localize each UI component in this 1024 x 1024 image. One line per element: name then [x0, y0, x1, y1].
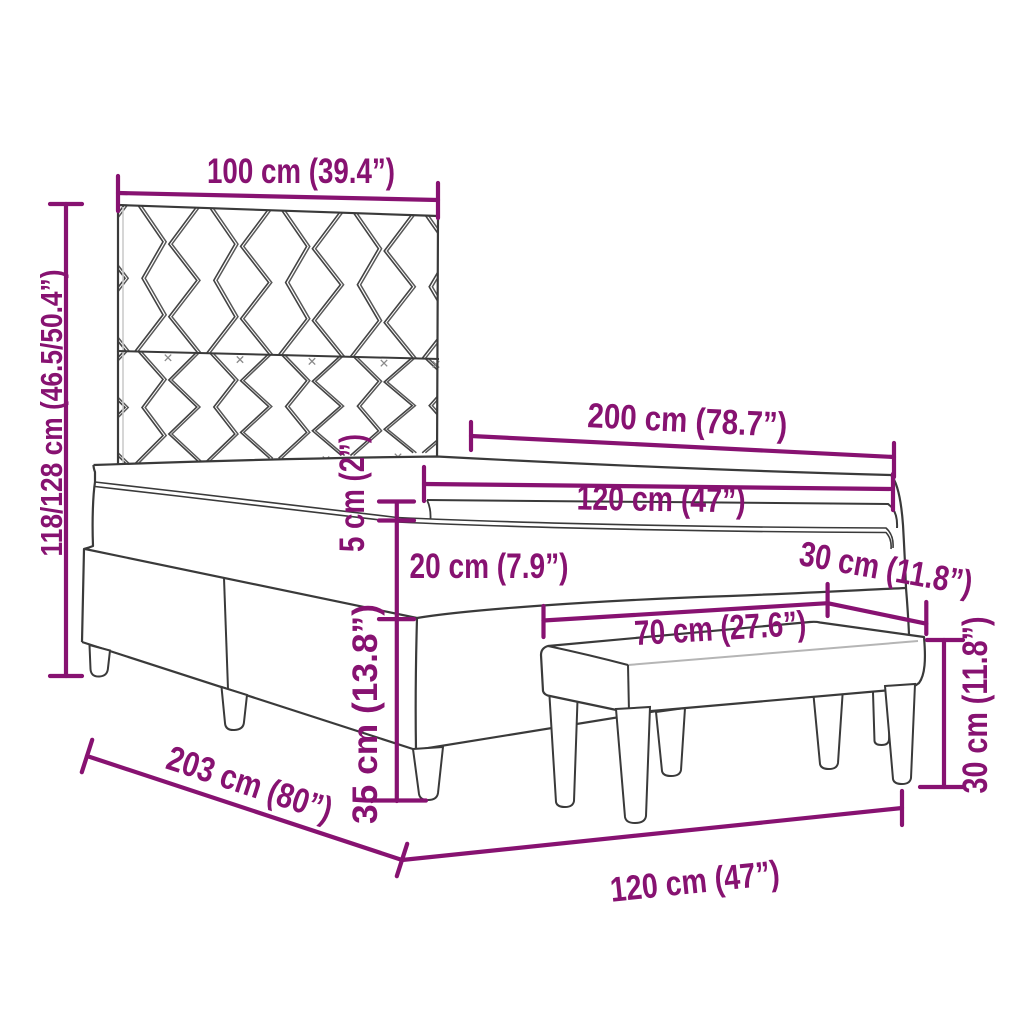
svg-text:35 cm (13.8”): 35 cm (13.8”)	[346, 604, 385, 824]
svg-text:120 cm (47”): 120 cm (47”)	[576, 479, 746, 521]
svg-text:20 cm (7.9”): 20 cm (7.9”)	[410, 547, 569, 586]
svg-text:118/128 cm (46.5/50.4”): 118/128 cm (46.5/50.4”)	[34, 270, 69, 557]
svg-text:100 cm (39.4”): 100 cm (39.4”)	[207, 152, 395, 191]
svg-text:200 cm (78.7”): 200 cm (78.7”)	[587, 396, 789, 445]
svg-text:30 cm (11.8”): 30 cm (11.8”)	[956, 617, 995, 794]
svg-text:203 cm (80”): 203 cm (80”)	[162, 739, 338, 830]
svg-text:120 cm (47”): 120 cm (47”)	[608, 853, 781, 909]
svg-text:5 cm (2”): 5 cm (2”)	[333, 434, 372, 552]
